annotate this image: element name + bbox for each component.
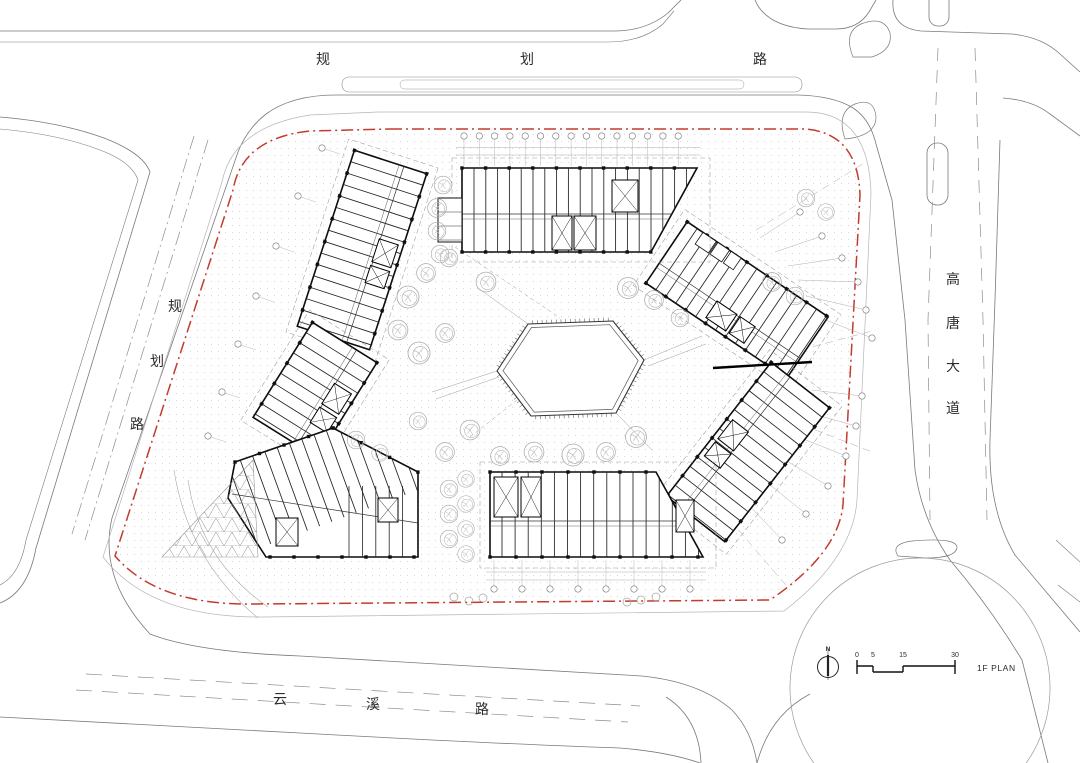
north-label: N [826, 646, 831, 653]
road-label-right-char-2: 大 [946, 358, 960, 374]
median-island [927, 143, 948, 205]
lane-line [928, 48, 938, 520]
road-label-right-char-0: 高 [946, 271, 960, 287]
scale-tick-30: 30 [951, 652, 959, 659]
road-curb [666, 697, 701, 763]
scale-tick-15: 15 [899, 652, 907, 659]
road-label-left-char-1: 划 [150, 353, 164, 369]
road-label-top-char-2: 路 [753, 51, 767, 67]
road-curb [1003, 98, 1080, 136]
road-label-top-char-1: 划 [520, 51, 534, 67]
road-curb [0, 129, 138, 585]
road-label-bottom-char-2: 路 [475, 701, 489, 717]
road-label-left-char-0: 规 [168, 298, 182, 314]
road-label-left-char-2: 路 [130, 416, 144, 432]
floor-plan-sheet: 规 划 路 规 划 路 高 唐 大 道 云 溪 路 N 0 5 15 30 1F… [0, 0, 1080, 763]
road-label-right-char-3: 道 [946, 400, 960, 416]
road-curb [893, 0, 1080, 72]
traffic-island [849, 21, 890, 57]
scale-tick-5: 5 [871, 652, 875, 659]
lane-line [975, 48, 987, 520]
scale-tick-0: 0 [855, 652, 859, 659]
road-curb [0, 11, 674, 42]
road-curb [1056, 540, 1080, 602]
road-curb [990, 140, 1080, 632]
road-label-bottom-char-1: 溪 [366, 696, 380, 712]
road-label-bottom-char-0: 云 [273, 691, 287, 707]
plan-title: 1F PLAN [977, 663, 1016, 673]
road-label-top-char-0: 规 [316, 51, 330, 67]
road-curb [757, 694, 810, 763]
road-curb [0, 0, 681, 31]
median-island [400, 80, 744, 89]
median-island [342, 77, 802, 92]
lane-line [86, 674, 640, 706]
scale-bar-shape [857, 660, 955, 674]
north-arrow: N [818, 646, 839, 680]
lane-line [76, 690, 628, 722]
median-island [929, 0, 949, 26]
road-label-right-char-1: 唐 [946, 315, 960, 331]
traffic-island [896, 540, 957, 558]
road-curb [755, 0, 876, 29]
road-curb [0, 717, 700, 763]
traffic-island [842, 102, 876, 139]
site-plan-canvas: 规 划 路 规 划 路 高 唐 大 道 云 溪 路 N 0 5 15 30 1F… [0, 0, 1080, 763]
scale-bar: 0 5 15 30 [855, 652, 959, 674]
legend: N 0 5 15 30 1F PLAN [818, 646, 1016, 680]
